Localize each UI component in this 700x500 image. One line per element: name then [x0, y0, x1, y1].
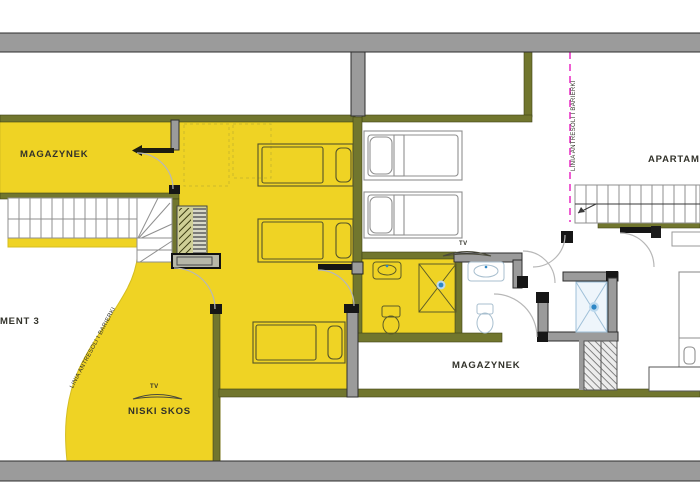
beds-white-room	[364, 131, 462, 238]
shower-room	[536, 271, 618, 390]
staircase-left	[8, 198, 172, 262]
void-room	[362, 50, 532, 122]
toilet-icon	[477, 304, 493, 333]
room-label-apartment-right: APARTAMENT	[648, 154, 700, 165]
bathroom-white	[468, 262, 504, 333]
tv-label-1: TV	[459, 241, 467, 247]
right-apartment-furniture	[649, 232, 700, 391]
shower-icon	[576, 282, 607, 332]
room-label-low-slope: NISKI SKOS	[128, 406, 191, 417]
floor-plan-drawing	[0, 0, 700, 500]
staircase-right	[575, 185, 700, 223]
room-label-storage-top: MAGAZYNEK	[20, 149, 88, 160]
tv-label-2: TV	[150, 384, 158, 390]
room-label-apartment-3: APARTAMENT 3	[0, 316, 40, 327]
floor-plan: MAGAZYNEK APARTAMENT 3 APARTAMENT MAGAZY…	[0, 0, 700, 500]
mezzanine-line-label-right: LINIA ANTRESOLI I BARIERKI	[571, 80, 577, 171]
apartment-3-highlight	[0, 117, 457, 461]
room-label-storage-bottom: MAGAZYNEK	[452, 360, 520, 371]
